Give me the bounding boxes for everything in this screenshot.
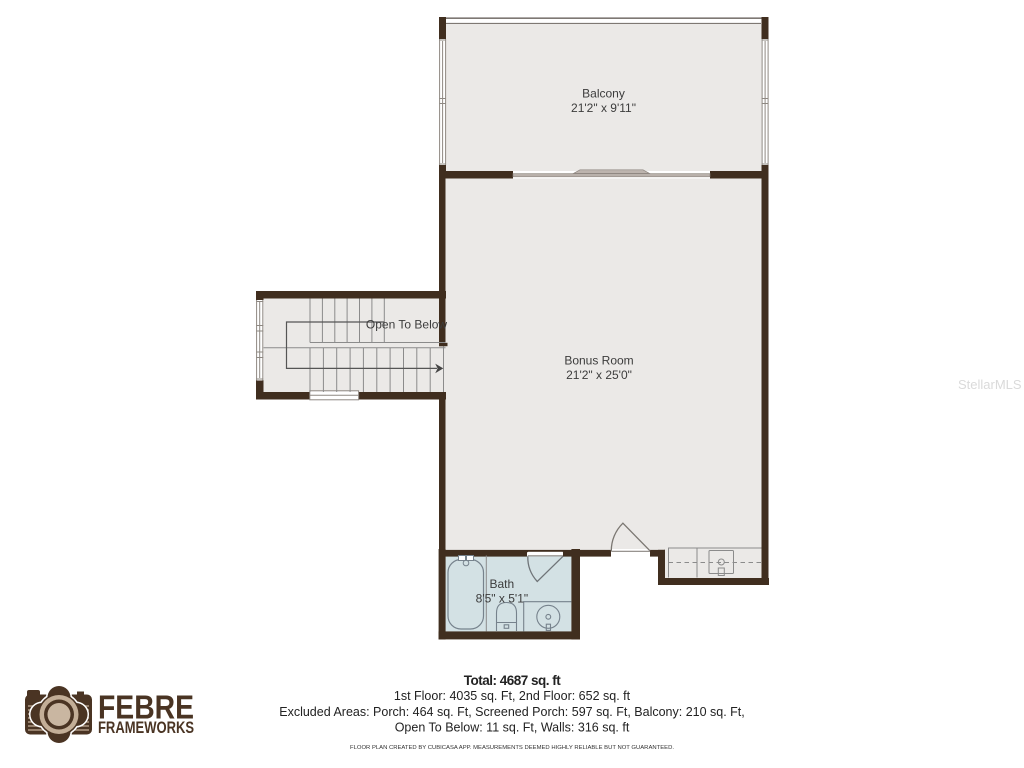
svg-text:FLOOR PLAN CREATED BY CUBICASA: FLOOR PLAN CREATED BY CUBICASA APP. MEAS…: [350, 745, 674, 751]
svg-text:Bath: Bath: [489, 577, 514, 591]
svg-text:Total: 4687 sq. ft: Total: 4687 sq. ft: [464, 673, 562, 688]
svg-text:21'2" x 25'0": 21'2" x 25'0": [566, 368, 632, 382]
svg-text:Balcony: Balcony: [582, 87, 625, 101]
svg-text:FRAMEWORKS: FRAMEWORKS: [98, 719, 194, 737]
svg-text:Open To Below: Open To Below: [366, 318, 447, 332]
svg-text:21'2" x 9'11": 21'2" x 9'11": [571, 101, 636, 115]
svg-text:Open To Below: 11 sq. Ft, Wall: Open To Below: 11 sq. Ft, Walls: 316 sq.…: [395, 721, 630, 735]
svg-text:StellarMLS: StellarMLS: [958, 377, 1022, 392]
svg-text:Excluded Areas: Porch: 464 sq.: Excluded Areas: Porch: 464 sq. Ft, Scree…: [279, 705, 745, 719]
svg-text:Bonus Room: Bonus Room: [564, 353, 633, 367]
svg-text:1st Floor: 4035 sq. Ft, 2nd Fl: 1st Floor: 4035 sq. Ft, 2nd Floor: 652 s…: [394, 689, 631, 703]
svg-text:8'5" x 5'1": 8'5" x 5'1": [476, 592, 528, 606]
